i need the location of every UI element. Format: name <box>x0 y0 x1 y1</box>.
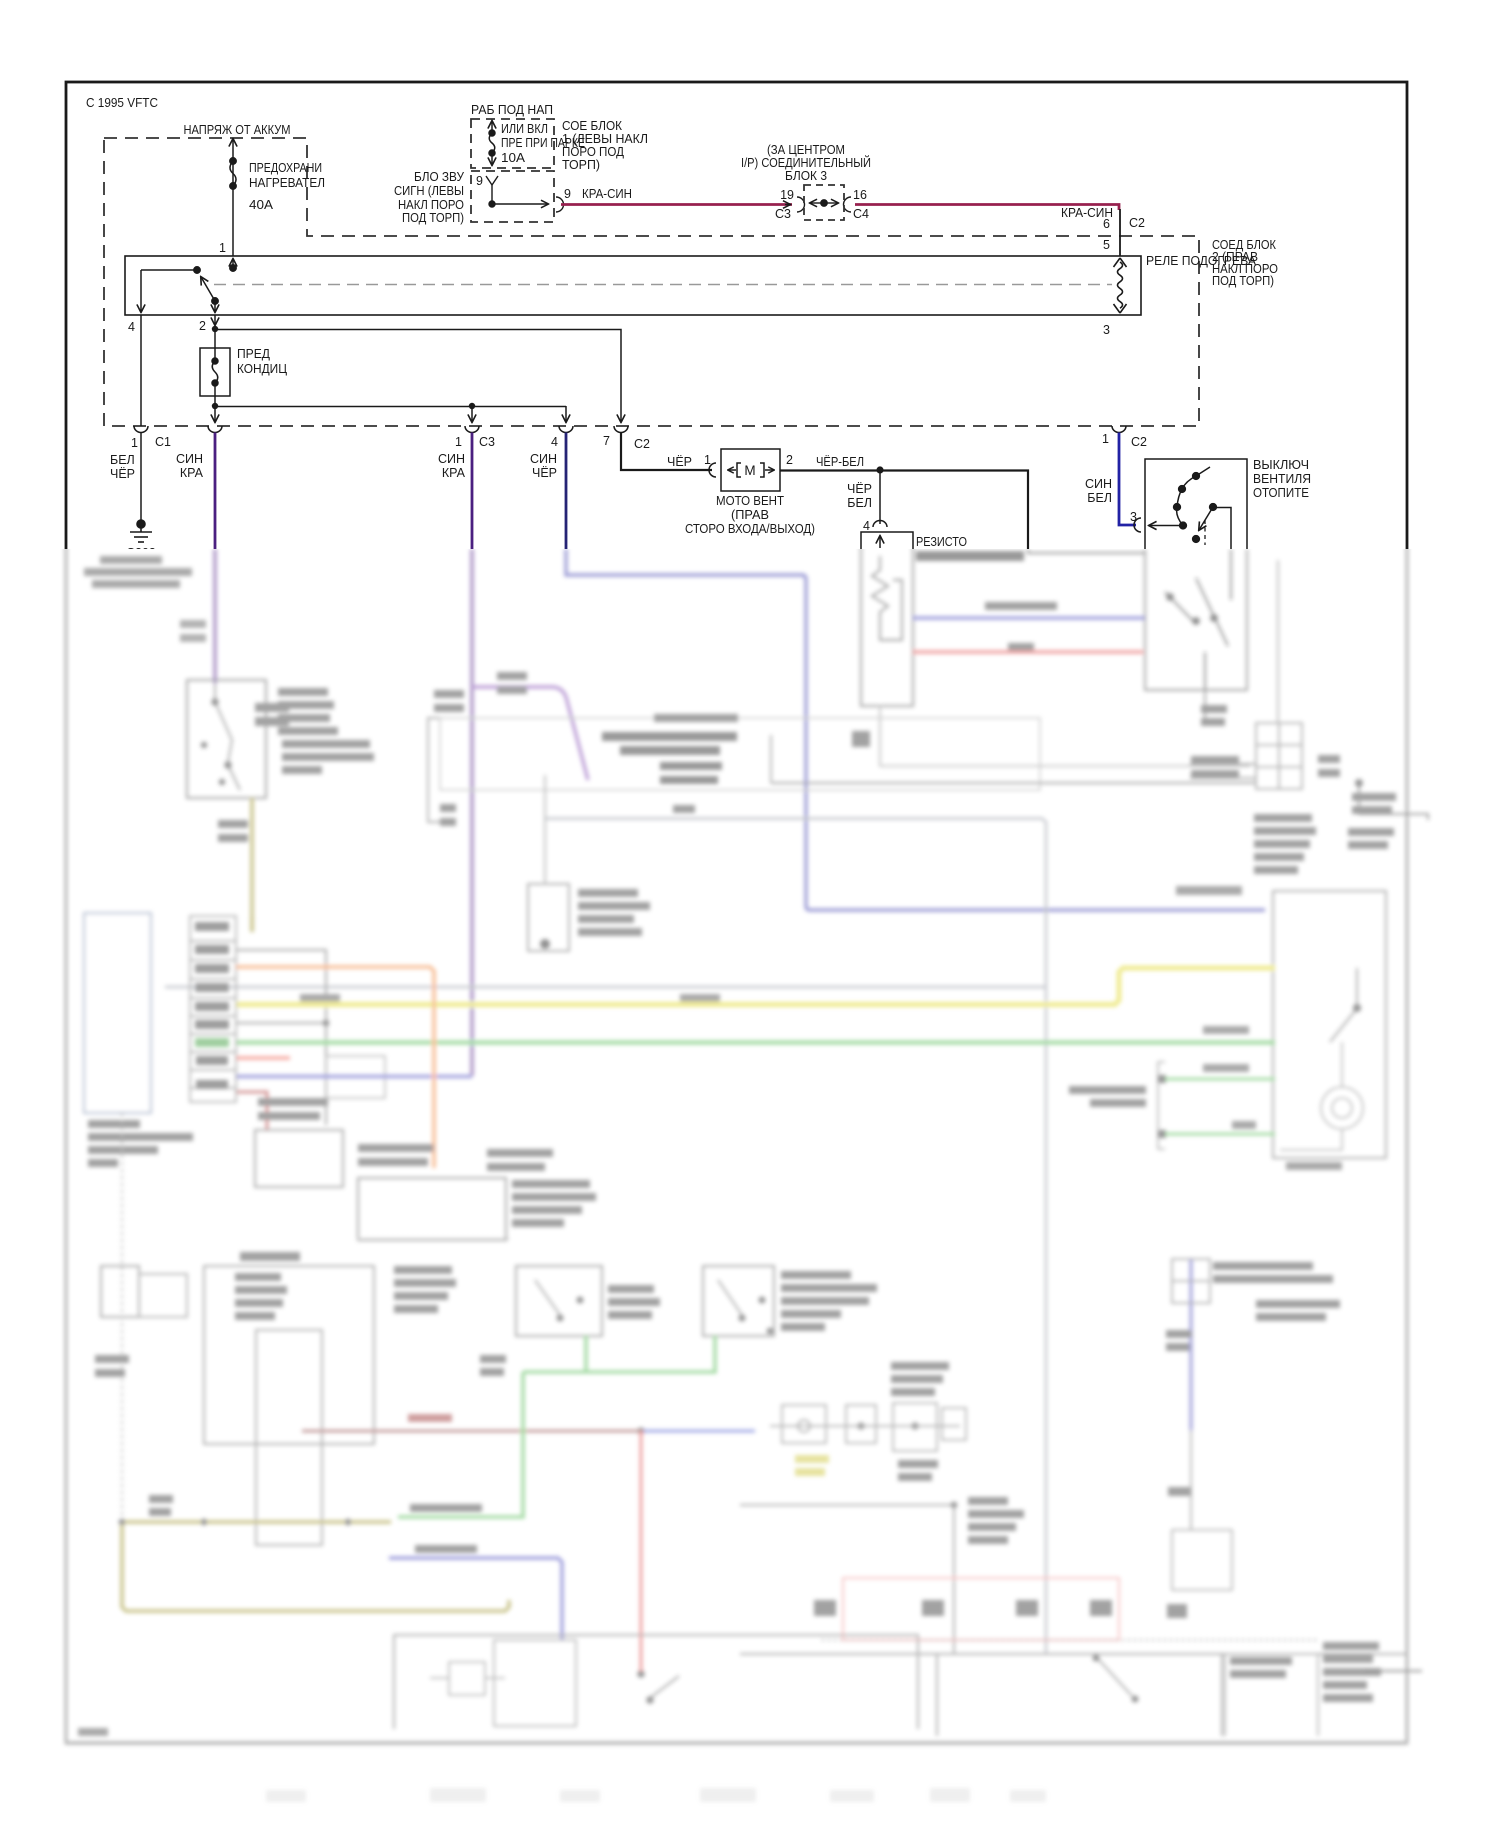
svg-text:ОТОПИТЕ: ОТОПИТЕ <box>1253 486 1309 500</box>
svg-text:4: 4 <box>551 435 558 449</box>
svg-text:16: 16 <box>853 188 867 202</box>
svg-text:СИН: СИН <box>176 452 203 466</box>
svg-text:С2: С2 <box>1129 216 1145 230</box>
svg-text:19: 19 <box>780 188 794 202</box>
svg-text:4: 4 <box>863 519 870 533</box>
svg-text:7: 7 <box>603 434 610 448</box>
svg-text:ПОД ТОРП): ПОД ТОРП) <box>1212 274 1274 288</box>
svg-text:БЕЛ: БЕЛ <box>847 496 872 510</box>
svg-text:КОНДИЦ: КОНДИЦ <box>237 361 287 376</box>
svg-text:БЕЛ: БЕЛ <box>110 453 135 467</box>
svg-text:ПОД ТОРП): ПОД ТОРП) <box>402 211 464 225</box>
svg-text:СТОРО ВХОДА/ВЫХОД): СТОРО ВХОДА/ВЫХОД) <box>685 521 815 536</box>
svg-text:С3: С3 <box>775 207 791 221</box>
svg-text:4: 4 <box>128 320 135 334</box>
svg-text:(ПРАВ: (ПРАВ <box>731 507 769 522</box>
svg-text:С3: С3 <box>479 435 495 449</box>
svg-text:1: 1 <box>219 241 226 255</box>
svg-text:40А: 40А <box>249 197 273 212</box>
svg-text:БЛОК 3: БЛОК 3 <box>785 169 827 183</box>
svg-text:КРА: КРА <box>180 466 204 480</box>
svg-text:ЧЁР: ЧЁР <box>110 467 135 481</box>
svg-text:9: 9 <box>476 174 483 188</box>
svg-text:1: 1 <box>704 453 711 467</box>
svg-text:I/P) СОЕДИНИТЕЛЬНЫЙ: I/P) СОЕДИНИТЕЛЬНЫЙ <box>741 155 871 170</box>
svg-text:10А: 10А <box>501 151 526 165</box>
svg-text:2: 2 <box>199 319 206 333</box>
svg-text:НАПРЯЖ ОТ АККУМ: НАПРЯЖ ОТ АККУМ <box>184 122 291 137</box>
svg-text:СИН: СИН <box>438 452 465 466</box>
svg-text:6: 6 <box>1103 217 1110 231</box>
svg-text:2: 2 <box>786 453 793 467</box>
svg-text:РАБ ПОД НАП: РАБ ПОД НАП <box>471 102 553 117</box>
svg-text:СИН: СИН <box>1085 477 1112 491</box>
svg-text:ВЕНТИЛЯ: ВЕНТИЛЯ <box>1253 472 1311 486</box>
svg-text:ПОРО ПОД: ПОРО ПОД <box>562 145 624 159</box>
svg-text:КРА-СИН: КРА-СИН <box>582 186 632 201</box>
svg-text:ЧЁР: ЧЁР <box>667 455 692 469</box>
svg-text:9: 9 <box>564 187 571 201</box>
svg-text:С4: С4 <box>853 207 869 221</box>
svg-text:ЧЁР-БЕЛ: ЧЁР-БЕЛ <box>816 455 864 469</box>
svg-text:1: 1 <box>1102 432 1109 446</box>
svg-text:С2: С2 <box>634 437 650 451</box>
svg-text:БЛО ЗВУ: БЛО ЗВУ <box>414 170 464 184</box>
svg-text:1 (ЛЕВЫ НАКЛ: 1 (ЛЕВЫ НАКЛ <box>562 132 648 146</box>
svg-text:ЧЁР: ЧЁР <box>532 466 557 480</box>
svg-text:СИГН (ЛЕВЫ: СИГН (ЛЕВЫ <box>394 184 464 198</box>
svg-text:НАКЛ ПОРО: НАКЛ ПОРО <box>398 198 464 212</box>
svg-text:3: 3 <box>1103 323 1110 337</box>
svg-text:ПРЕДОХРАНИ: ПРЕДОХРАНИ <box>249 160 322 175</box>
svg-text:ИЛИ ВКЛ: ИЛИ ВКЛ <box>501 122 548 136</box>
svg-text:С1: С1 <box>155 435 171 449</box>
svg-text:М: М <box>744 463 755 478</box>
svg-text:3: 3 <box>1130 510 1137 524</box>
svg-text:С2: С2 <box>1131 435 1147 449</box>
svg-text:(ЗА ЦЕНТРОМ: (ЗА ЦЕНТРОМ <box>767 143 845 157</box>
svg-text:КРА: КРА <box>442 466 466 480</box>
svg-text:СИН: СИН <box>530 452 557 466</box>
svg-text:ВЫКЛЮЧ: ВЫКЛЮЧ <box>1253 458 1309 472</box>
svg-text:СОЕ БЛОК: СОЕ БЛОК <box>562 119 623 133</box>
svg-text:ПРЕД: ПРЕД <box>237 346 270 361</box>
svg-text:5: 5 <box>1103 238 1110 252</box>
svg-text:РЕЗИСТО: РЕЗИСТО <box>916 534 967 549</box>
svg-text:МОТО ВЕНТ: МОТО ВЕНТ <box>716 493 784 508</box>
svg-text:БЕЛ: БЕЛ <box>1087 491 1112 505</box>
svg-text:1: 1 <box>455 435 462 449</box>
svg-text:НАГРЕВАТЕЛ: НАГРЕВАТЕЛ <box>249 175 325 190</box>
svg-text:ЧЁР: ЧЁР <box>847 482 872 496</box>
svg-text:ТОРП): ТОРП) <box>562 158 600 172</box>
svg-text:C 1995 VFTC: C 1995 VFTC <box>86 95 158 110</box>
svg-text:1: 1 <box>131 436 138 450</box>
